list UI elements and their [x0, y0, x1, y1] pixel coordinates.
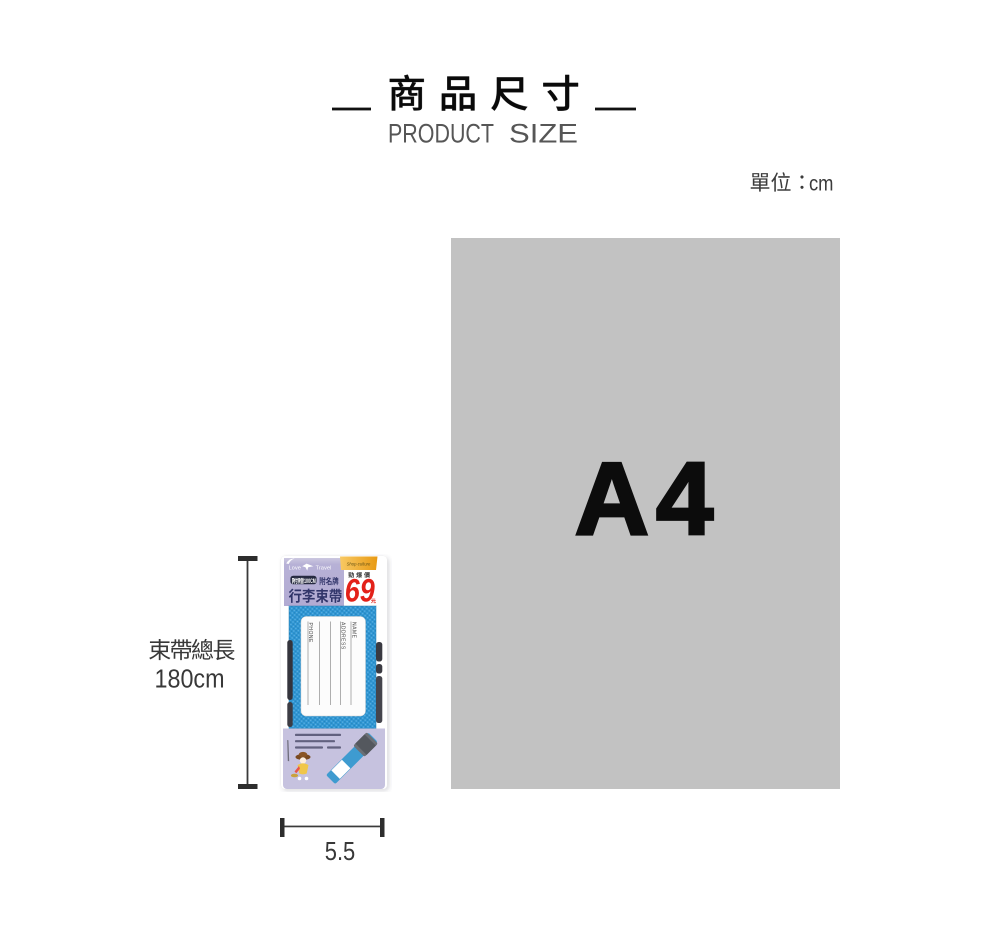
svg-text:Love: Love: [289, 565, 302, 571]
svg-text:5.5: 5.5: [325, 836, 356, 866]
svg-text:SIZE: SIZE: [509, 119, 578, 149]
svg-text:NAME: NAME: [351, 622, 357, 639]
svg-text:Travel: Travel: [316, 565, 332, 571]
svg-text:PRODUCT: PRODUCT: [388, 119, 494, 149]
svg-text:PHONE: PHONE: [307, 623, 313, 643]
svg-text:cm: cm: [809, 172, 834, 196]
svg-text:180cm: 180cm: [155, 665, 225, 693]
svg-text:69: 69: [345, 572, 375, 608]
svg-text:Shop·culture: Shop·culture: [347, 562, 371, 567]
svg-text:100CM: 100CM: [304, 579, 316, 585]
svg-text:ADDRESS: ADDRESS: [340, 622, 346, 650]
